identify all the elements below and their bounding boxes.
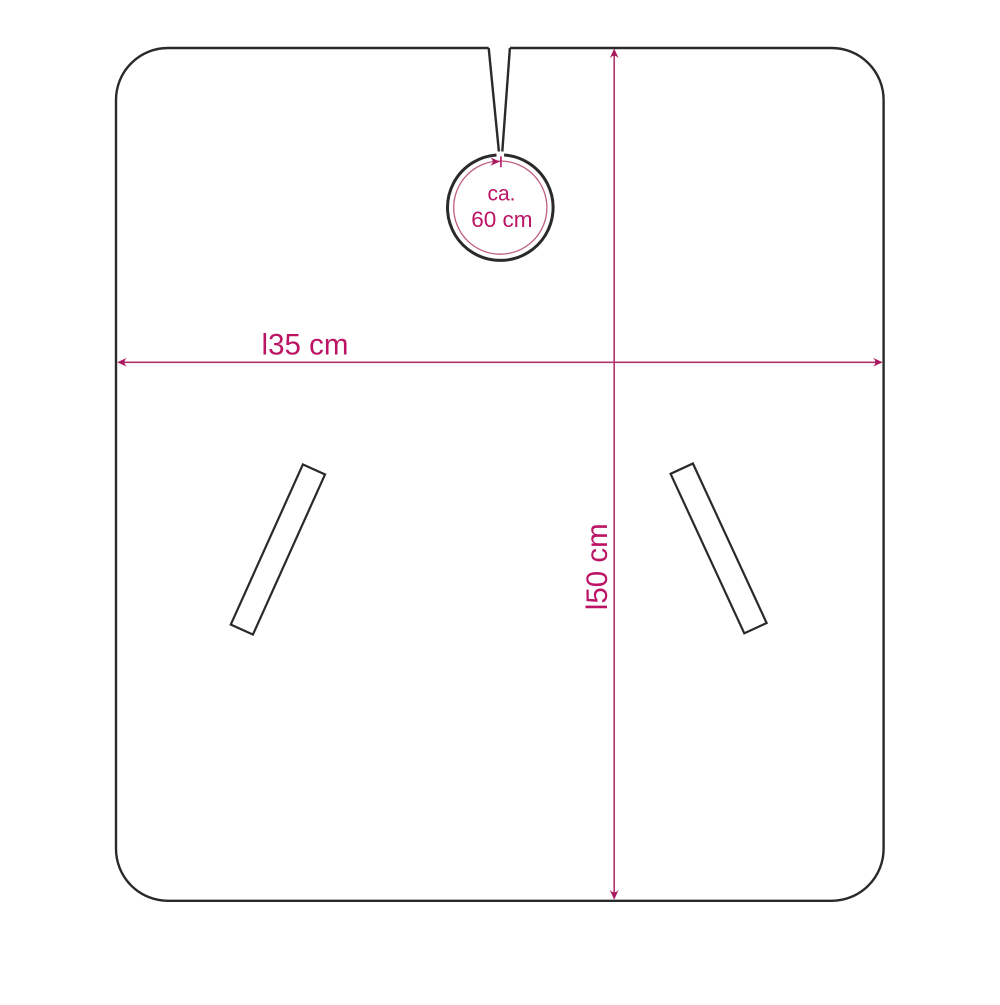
svg-text:60 cm: 60 cm	[471, 207, 532, 232]
svg-text:l50 cm: l50 cm	[581, 523, 614, 610]
svg-text:l35 cm: l35 cm	[262, 328, 349, 361]
svg-text:ca.: ca.	[487, 182, 515, 205]
